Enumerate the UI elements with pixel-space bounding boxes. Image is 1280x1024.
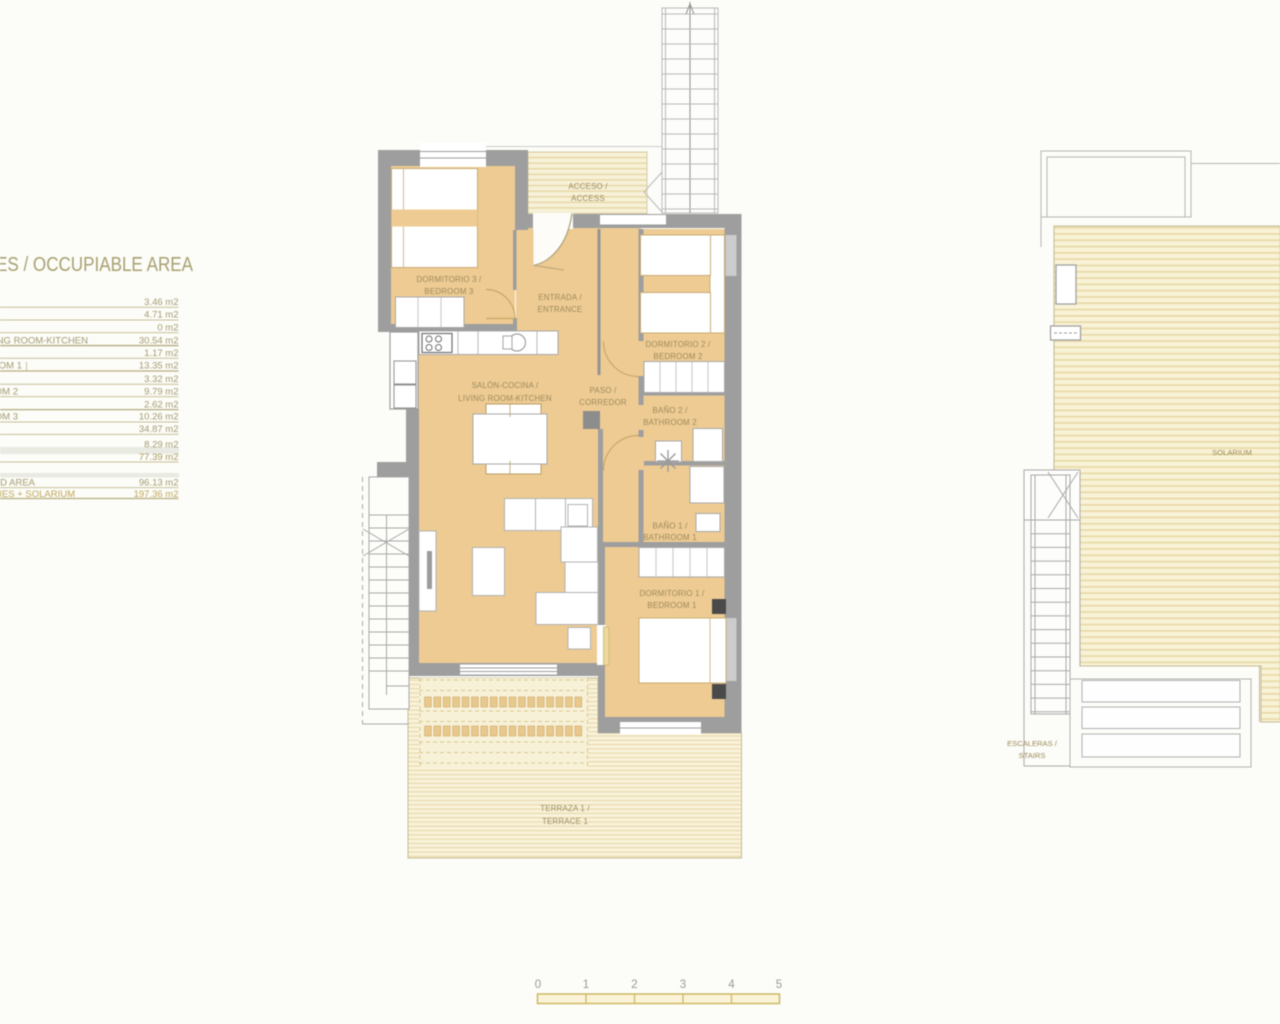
svg-text:ACCESO /: ACCESO /	[568, 182, 608, 191]
svg-text:ACCESS: ACCESS	[571, 194, 605, 203]
svg-text:8.29 m2: 8.29 m2	[144, 440, 178, 451]
svg-text:LIVING ROOM-KITCHEN: LIVING ROOM-KITCHEN	[0, 335, 88, 346]
svg-text:4.71 m2: 4.71 m2	[144, 310, 178, 321]
svg-text:3.32 m2: 3.32 m2	[144, 374, 178, 385]
svg-text:2.62 m2: 2.62 m2	[144, 399, 178, 410]
svg-text:4: 4	[728, 979, 735, 991]
svg-text:DORMITORIO 2 /: DORMITORIO 2 /	[646, 340, 712, 349]
svg-text:77.39 m2: 77.39 m2	[139, 452, 179, 463]
svg-text:3: 3	[680, 979, 686, 991]
svg-text:SUPERFICIES + SOLARIUM: SUPERFICIES + SOLARIUM	[0, 489, 75, 500]
svg-text:ES / OCCUPIABLE AREA: ES / OCCUPIABLE AREA	[0, 254, 194, 276]
svg-text:2: 2	[631, 979, 637, 991]
svg-text:LIVING ROOM-KITCHEN: LIVING ROOM-KITCHEN	[458, 394, 552, 403]
svg-text:5: 5	[776, 979, 782, 991]
svg-text:ESCALERAS /: ESCALERAS /	[1007, 739, 1058, 748]
svg-text:9.79 m2: 9.79 m2	[144, 386, 178, 397]
svg-text:STAIRS: STAIRS	[1019, 751, 1046, 760]
svg-text:DORMITORIO 1 /: DORMITORIO 1 /	[640, 589, 706, 598]
svg-text:BEDROOM 2: BEDROOM 2	[0, 386, 18, 397]
svg-text:OCCUPIED AREA: OCCUPIED AREA	[0, 477, 36, 488]
svg-text:BATHROOM 1: BATHROOM 1	[643, 533, 697, 542]
svg-text:10.26 m2: 10.26 m2	[139, 412, 179, 423]
svg-text:TERRACE 1: TERRACE 1	[542, 817, 588, 826]
svg-text:ENTRANCE: ENTRANCE	[537, 305, 582, 314]
svg-text:0: 0	[535, 979, 541, 991]
svg-text:13.35 m2: 13.35 m2	[139, 361, 179, 372]
svg-text:1.17 m2: 1.17 m2	[144, 348, 178, 359]
svg-text:DORMITORIO 3 /: DORMITORIO 3 /	[417, 275, 483, 284]
svg-text:ENTRADA /: ENTRADA /	[538, 293, 582, 302]
svg-text:BEDROOM 3: BEDROOM 3	[0, 412, 18, 423]
svg-text:BAÑO 1 /: BAÑO 1 /	[653, 522, 689, 531]
svg-text:BEDROOM 1: BEDROOM 1	[647, 601, 696, 610]
svg-text:PASO /: PASO /	[590, 386, 618, 395]
svg-text:BEDROOM 1: BEDROOM 1	[0, 361, 22, 372]
svg-text:BAÑO 2 /: BAÑO 2 /	[653, 406, 689, 415]
svg-text:SALÓN-COCINA /: SALÓN-COCINA /	[472, 381, 539, 390]
svg-text:34.87 m2: 34.87 m2	[139, 424, 179, 435]
svg-text:SOLARIUM: SOLARIUM	[1212, 448, 1252, 457]
svg-text:CORREDOR: CORREDOR	[579, 398, 627, 407]
svg-text:TERRAZA 1 /: TERRAZA 1 /	[540, 804, 590, 813]
svg-text:96.13 m2: 96.13 m2	[139, 477, 179, 488]
svg-text:0 m2: 0 m2	[157, 322, 178, 333]
svg-text:3.46 m2: 3.46 m2	[144, 297, 178, 308]
svg-text:197.36 m2: 197.36 m2	[134, 489, 179, 500]
svg-text:BEDROOM 2: BEDROOM 2	[653, 352, 702, 361]
svg-text:BATHROOM 2: BATHROOM 2	[643, 418, 697, 427]
svg-text:30.54 m2: 30.54 m2	[139, 335, 179, 346]
svg-text:1: 1	[583, 979, 589, 991]
svg-text:BEDROOM 3: BEDROOM 3	[424, 287, 474, 296]
